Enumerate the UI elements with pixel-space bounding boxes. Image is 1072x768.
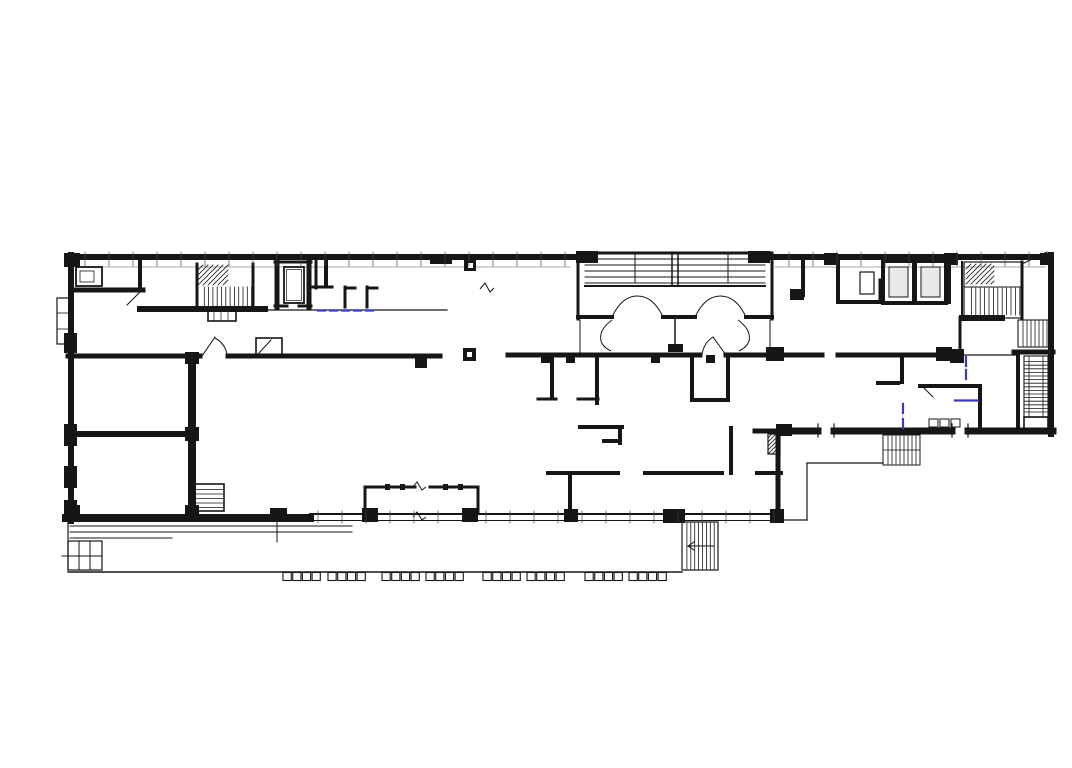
- thin-lines-layer: [57, 252, 1047, 572]
- wall-ticks-layer: [85, 252, 1029, 523]
- floor-plan-page: [0, 0, 1072, 768]
- floor-plan-svg: [0, 0, 1072, 768]
- teeth-strip: [283, 573, 666, 581]
- blue-annotations-layer: [318, 311, 978, 432]
